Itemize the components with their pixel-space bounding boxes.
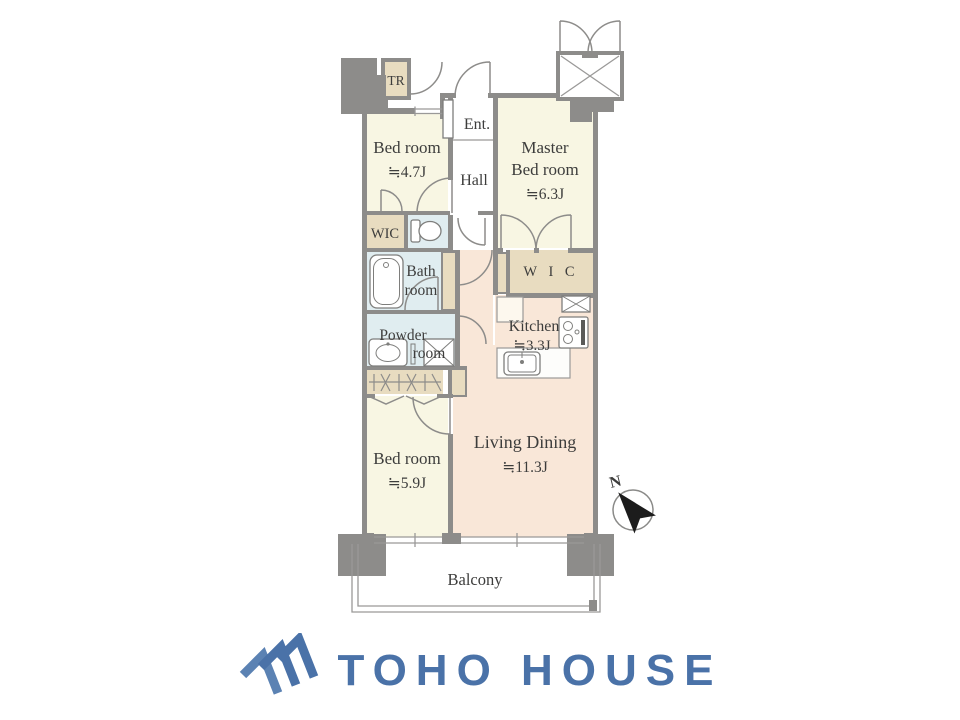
label-bedroom-59: Bed room (373, 449, 441, 468)
label-living-dining: Living Dining (474, 432, 577, 452)
size-bedroom-47: ≒4.7J (388, 164, 426, 181)
room-bedroom-47 (367, 113, 448, 213)
refrigerator-space (562, 296, 590, 312)
label-trunk-room: TR (387, 73, 404, 88)
size-bedroom-59: ≒5.9J (388, 475, 426, 492)
toho-house-logo: TOHO HOUSE (0, 626, 960, 716)
label-bath-line1: Bath (406, 263, 436, 280)
label-master-line2: Bed room (511, 160, 579, 179)
entrance-door (455, 62, 490, 97)
label-kitchen: Kitchen (509, 318, 560, 335)
trunk-room-door (410, 62, 442, 94)
kitchen-sink-icon (504, 352, 540, 375)
triple-chevron-house-icon (237, 633, 321, 709)
label-powder-line2: room (413, 345, 446, 362)
label-wic-small: WIC (371, 226, 399, 242)
pipe-space (442, 252, 456, 310)
toilet-door (458, 218, 485, 245)
label-balcony: Balcony (448, 570, 504, 589)
label-wic-master: W I C (523, 264, 578, 280)
size-living-dining: ≒11.3J (502, 459, 548, 476)
size-kitchen: ≒3.3J (513, 338, 550, 354)
label-powder-line1: Powder (379, 327, 427, 344)
page: N TR Ent. Hall Bed room ≒4.7J Master Bed… (0, 0, 960, 720)
size-master: ≒6.3J (526, 186, 564, 203)
floor-plan: N TR Ent. Hall Bed room ≒4.7J Master Bed… (0, 0, 960, 720)
storage-nook (451, 368, 466, 396)
toilet-icon (411, 220, 441, 242)
label-entrance: Ent. (464, 116, 490, 133)
stove-icon (559, 317, 588, 348)
label-bedroom-47: Bed room (373, 138, 441, 157)
compass-north-label: N (608, 472, 624, 491)
label-bath-line2: room (405, 282, 438, 299)
bathtub-icon (370, 255, 403, 308)
label-hall: Hall (460, 172, 488, 189)
elevator-icon (558, 21, 622, 99)
label-master-line1: Master (521, 138, 569, 157)
toho-house-logo-text: TOHO HOUSE (337, 646, 722, 696)
north-arrow-icon: N (607, 472, 655, 533)
shoe-cabinet (443, 100, 453, 138)
